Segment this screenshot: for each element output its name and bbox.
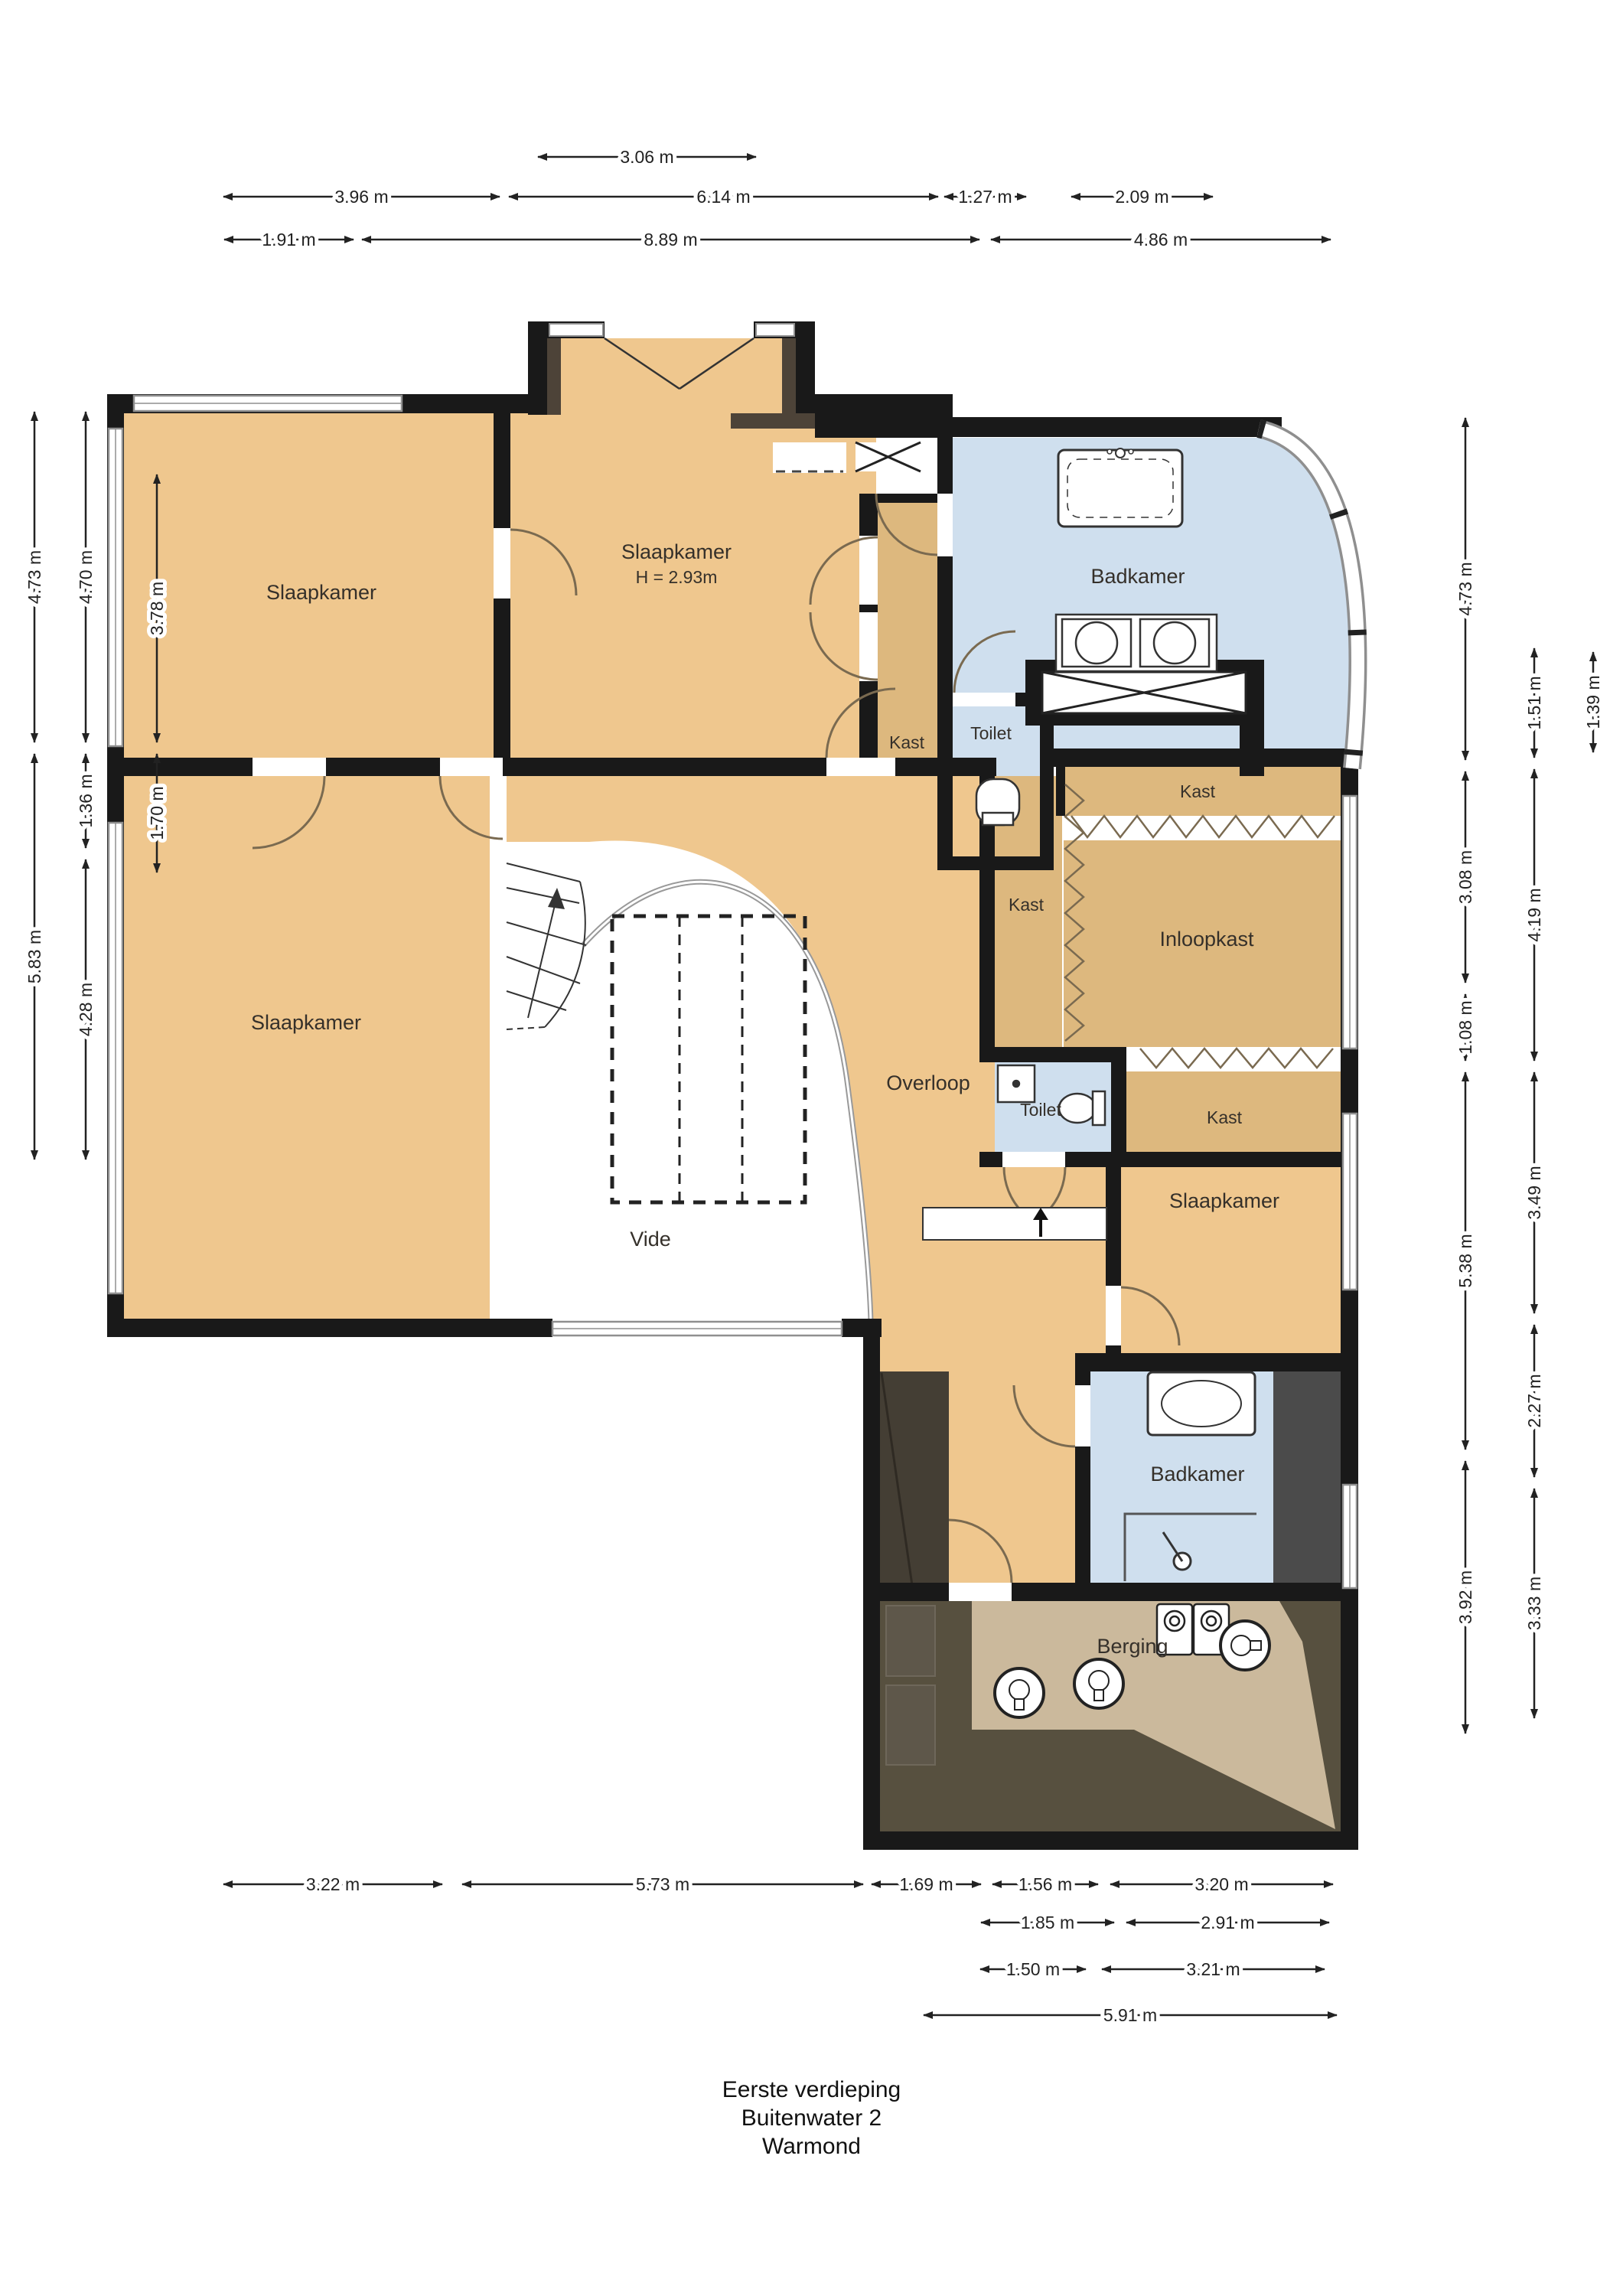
dimension-label: 3.96 m [334,187,388,207]
room-label-kast-top-right: Kast [1180,781,1216,801]
dimension-label: 2.27 m [1524,1374,1544,1427]
dimension-label: 1.85 m [1021,1913,1074,1932]
bifold-doors [1140,1049,1333,1068]
dimension-label: 4.86 m [1134,230,1188,249]
room-label-toilet-mid: Toilet [1020,1100,1061,1120]
corner-sink-icon [998,1065,1035,1102]
dimension-label: 4.73 m [24,550,44,604]
dimension-label: 3.21 m [1186,1959,1240,1979]
window [1343,796,1357,1049]
stair-arrival-arrow [923,1208,1106,1240]
dimension-label: 1.91 m [262,230,315,249]
room-label-slaapkamer-tl: Slaapkamer [266,581,376,604]
dimension-label: 5.83 m [24,930,44,983]
dimension-label: 3.49 m [1524,1166,1544,1219]
dimension-label: 1.08 m [1455,1000,1475,1054]
room-label-badkamer-bottom: Badkamer [1150,1463,1244,1486]
toilet-icon [1059,1091,1105,1125]
dimension-label: 3.20 m [1194,1874,1248,1894]
window [134,396,402,411]
room-label-inloopkast: Inloopkast [1159,928,1254,951]
dimension-label: 1.36 m [76,774,96,827]
dimension-label: 3.08 m [1455,850,1475,904]
bathtub-icon [1058,448,1182,527]
room-label-kast-tr: Kast [889,732,925,752]
floorplan-canvas: SlaapkamerSlaapkamerH = 2.93mKastToiletB… [0,0,1623,2296]
floorplan-page: SlaapkamerSlaapkamerH = 2.93mKastToiletB… [0,0,1623,2296]
dimension-label: 1.27 m [958,187,1012,207]
window [552,1322,842,1336]
dimension-label: 2.91 m [1201,1913,1254,1932]
dimension-label: 1.39 m [1583,675,1603,729]
dimension-label: 4.73 m [1455,562,1475,615]
dimension-label: 5.73 m [636,1874,689,1894]
floor-dormer [547,338,796,415]
dimension-label: 4.28 m [76,983,96,1036]
sloped-roof-zone [1273,1371,1341,1583]
window [1343,1485,1357,1588]
dimension-label: 1.69 m [899,1874,953,1894]
title-city: Warmond [0,2132,1623,2161]
room-label-slaapkamer-mid-height: H = 2.93m [636,567,718,587]
room-label-berging: Berging [1097,1635,1168,1658]
dimension-label: 3.78 m [147,582,167,635]
window [109,429,122,746]
dimension-label: 6.14 m [696,187,750,207]
dimension-label: 1.51 m [1524,676,1544,729]
berging-door-icon [886,1685,935,1765]
bifold-doors [1071,816,1335,837]
dimension-label: 5.38 m [1455,1234,1475,1287]
room-label-overloop: Overloop [886,1071,970,1094]
dimension-label: 8.89 m [644,230,697,249]
room-label-kast-mid-left: Kast [1009,895,1045,915]
title-address: Buitenwater 2 [0,2104,1623,2132]
dimension-label: 2.09 m [1115,187,1168,207]
bathtub-icon [1148,1372,1255,1435]
window [1343,1114,1357,1290]
room-label-toilet-tr: Toilet [970,723,1012,743]
dimension-label: 3.33 m [1524,1577,1544,1630]
floor-slaapkamer-bl [124,776,490,1319]
dimension-label: 4.19 m [1524,888,1544,941]
room-label-badkamer-tr: Badkamer [1090,565,1185,588]
dimension-label: 4.70 m [76,550,96,604]
berging-door-icon [886,1606,935,1676]
room-label-vide: Vide [630,1228,671,1251]
dimension-label: 5.91 m [1103,2005,1157,2025]
dimension-label: 3.92 m [1455,1570,1475,1624]
window [109,823,122,1293]
dimension-label: 1.50 m [1006,1959,1060,1979]
room-label-slaapkamer-bl: Slaapkamer [251,1011,361,1034]
dimension-label: 1.56 m [1018,1874,1072,1894]
toilet-icon [976,779,1019,825]
double-sink-icon [1056,615,1217,671]
dimension-label: 3.06 m [620,147,673,167]
room-label-slaapkamer-mid: Slaapkamer [621,540,732,563]
dimension-label: 1.70 m [147,786,167,840]
dimension-label: 3.22 m [306,1874,360,1894]
room-label-kast-bottom-right: Kast [1207,1107,1243,1127]
title-floor: Eerste verdieping [0,2076,1623,2104]
title-block: Eerste verdieping Buitenwater 2 Warmond [0,2076,1623,2161]
linen-closet-icon [1042,672,1246,713]
room-label-slaapkamer-right: Slaapkamer [1169,1189,1279,1212]
